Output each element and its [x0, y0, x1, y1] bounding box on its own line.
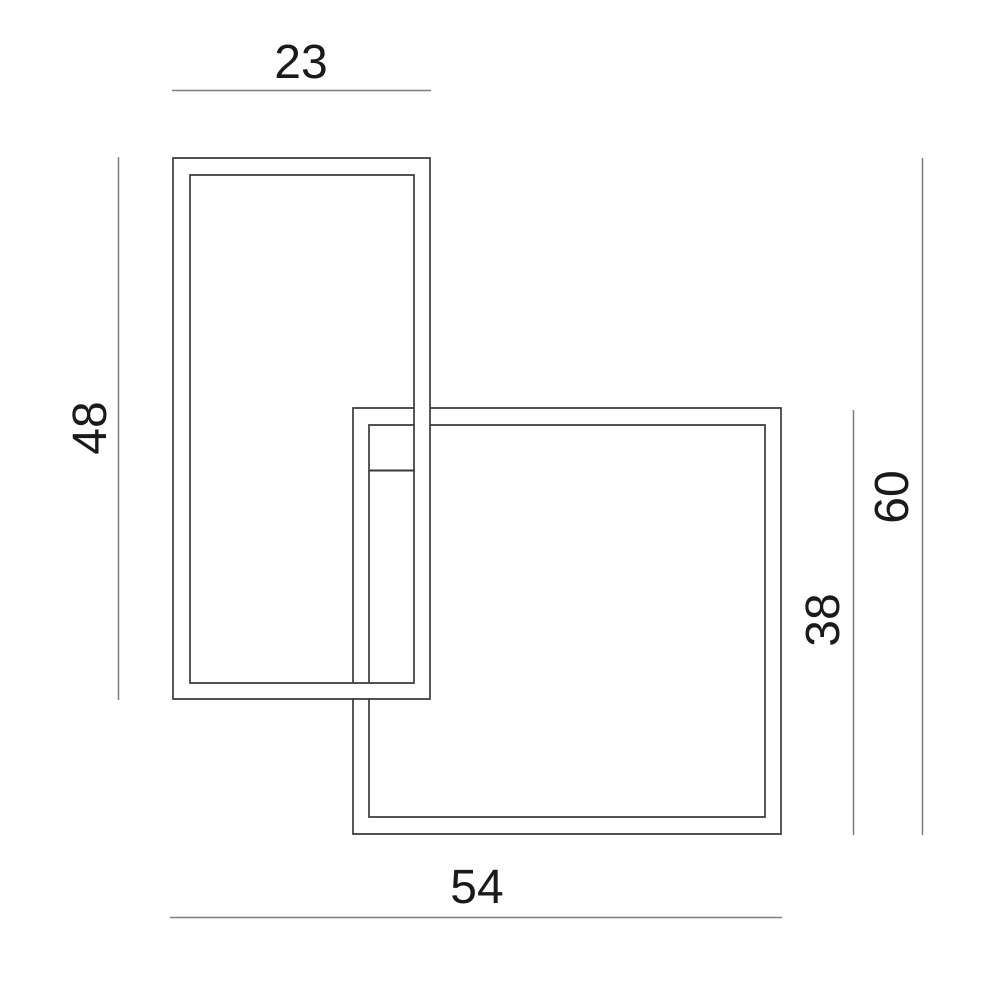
- drawing-canvas: 23 48 60 38 54: [0, 0, 1000, 1000]
- dim-label-top-width: 23: [274, 36, 327, 89]
- tall-rect-frame: [173, 158, 430, 699]
- dim-label-right-square-height: 38: [797, 593, 850, 646]
- dim-label-right-total-height: 60: [866, 470, 919, 523]
- dimension-drawing: 23 48 60 38 54: [0, 0, 1000, 1000]
- dim-label-bottom-width: 54: [450, 861, 503, 914]
- dim-label-left-height: 48: [64, 401, 117, 454]
